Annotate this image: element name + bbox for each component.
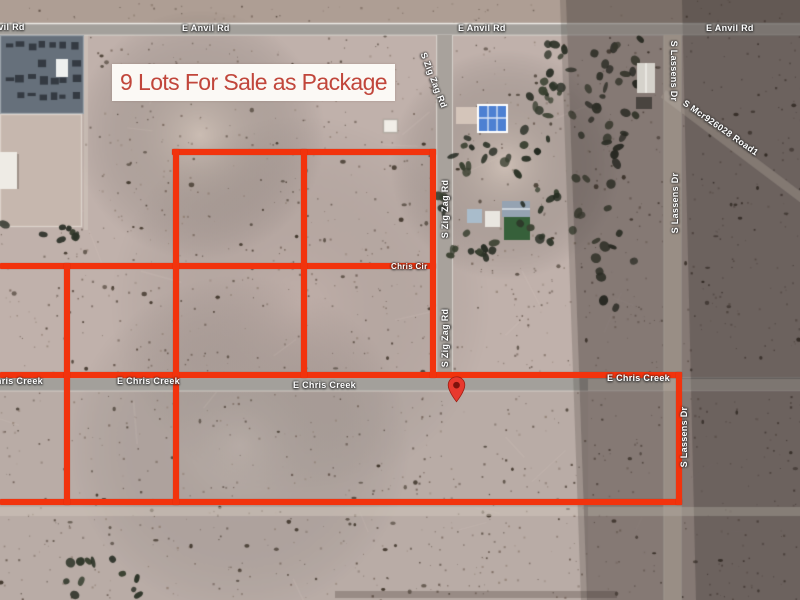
pin-body bbox=[448, 377, 465, 402]
road-label-e-chris-creek-east: E Chris Creek bbox=[607, 373, 670, 383]
road-label-e-chris-creek-2: E Chris Creek bbox=[293, 380, 356, 390]
road-label-s-lassens-dr-top: S Lassens Dr bbox=[669, 41, 679, 102]
road-label-s-lassens-dr-mid: S Lassens Dr bbox=[670, 173, 680, 234]
lot-boundary-vert-a bbox=[64, 263, 70, 505]
sale-banner: 9 Lots For Sale as Package bbox=[112, 64, 395, 101]
road-label-e-anvil-rd-center-2: E Anvil Rd bbox=[458, 23, 506, 33]
road-label-s-zig-zag-rd-low: S Zig Zag Rd bbox=[440, 309, 450, 368]
lot-boundary-vert-c bbox=[301, 149, 307, 378]
road-label-e-anvil-rd-east: E Anvil Rd bbox=[706, 23, 754, 33]
lot-boundary-vert-b bbox=[173, 149, 179, 505]
road-label-s-zig-zag-rd-mid: S Zig Zag Rd bbox=[440, 180, 450, 239]
road-label-chris-cir: Chris Cir bbox=[391, 262, 428, 271]
road-label-s-lassens-dr-low: S Lassens Dr bbox=[679, 407, 689, 468]
pin-dot bbox=[453, 382, 460, 389]
lot-boundary-bottom bbox=[0, 499, 682, 505]
sale-banner-text: 9 Lots For Sale as Package bbox=[120, 69, 387, 96]
road-label-e-chris-creek-1: E Chris Creek bbox=[117, 376, 180, 386]
road-label-e-anvil-rd-west: E Anvil Rd bbox=[0, 22, 25, 32]
satellite-map: E Anvil Rd E Anvil Rd E Anvil Rd E Anvil… bbox=[0, 0, 800, 600]
location-pin-icon bbox=[447, 376, 466, 403]
road-label-e-anvil-rd-center-1: E Anvil Rd bbox=[182, 23, 230, 33]
lot-boundary-chris-creek bbox=[0, 372, 682, 378]
lot-boundary-vert-d bbox=[430, 149, 436, 378]
road-label-e-chris-creek-west: E Chris Creek bbox=[0, 376, 43, 386]
